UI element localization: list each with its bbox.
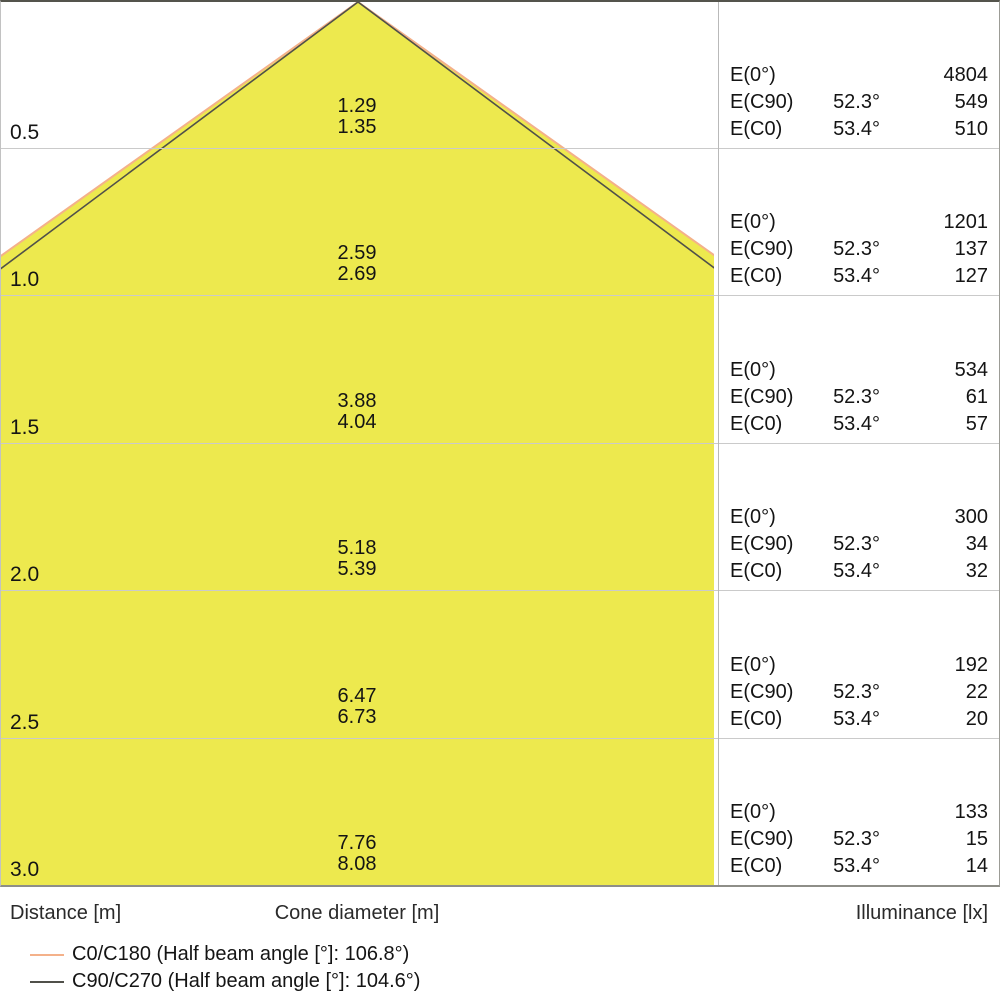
ec90-value: 22 (966, 681, 988, 704)
legend-label-c90-c270: C90/C270 (Half beam angle [°]: 104.6°) (72, 970, 420, 993)
ec90-label: E(C90) (730, 91, 793, 114)
ec0-label: E(C0) (730, 560, 782, 583)
ec90-line: E(C90) 52.3° 61 (730, 386, 988, 413)
e0-line: E(0°) 300 (730, 506, 988, 533)
e0-label: E(0°) (730, 801, 776, 824)
e0-label: E(0°) (730, 359, 776, 382)
cone-diameter-c90: 3.88 (0, 391, 714, 412)
ec90-value: 137 (955, 238, 988, 261)
ec0-line: E(C0) 53.4° 127 (730, 265, 988, 292)
ec0-value: 510 (955, 118, 988, 141)
cone-row: 0.5 1.29 1.35 E(0°) 4804 E(C90) 52.3° 54… (0, 1, 1000, 148)
e0-line: E(0°) 4804 (730, 64, 988, 91)
ec90-angle: 52.3° (833, 91, 880, 114)
cone-diameter-values: 7.76 8.08 (0, 833, 714, 875)
cone-diameter-values: 5.18 5.39 (0, 538, 714, 580)
ec0-angle: 53.4° (833, 560, 880, 583)
ec0-angle: 53.4° (833, 118, 880, 141)
ec90-label: E(C90) (730, 533, 793, 556)
e0-value: 1201 (944, 211, 989, 234)
cone-row: 2.0 5.18 5.39 E(0°) 300 E(C90) 52.3° 34 … (0, 443, 1000, 590)
cone-diameter-values: 1.29 1.35 (0, 96, 714, 138)
illuminance-table: E(0°) 4804 E(C90) 52.3° 549 E(C0) 53.4° … (730, 64, 988, 145)
ec0-line: E(C0) 53.4° 57 (730, 413, 988, 440)
e0-label: E(0°) (730, 211, 776, 234)
ec0-line: E(C0) 53.4° 14 (730, 855, 988, 882)
ec90-angle: 52.3° (833, 386, 880, 409)
cone-diameter-c0: 5.39 (0, 559, 714, 580)
illuminance-table: E(0°) 133 E(C90) 52.3° 15 E(C0) 53.4° 14 (730, 801, 988, 882)
x-axis-label-cone-diameter: Cone diameter [m] (0, 902, 714, 925)
ec90-line: E(C90) 52.3° 137 (730, 238, 988, 265)
cone-diameter-c0: 1.35 (0, 117, 714, 138)
e0-value: 534 (955, 359, 988, 382)
ec90-line: E(C90) 52.3° 549 (730, 91, 988, 118)
cone-diameter-c0: 8.08 (0, 854, 714, 875)
ec0-label: E(C0) (730, 708, 782, 731)
cone-row: 3.0 7.76 8.08 E(0°) 133 E(C90) 52.3° 15 … (0, 738, 1000, 885)
e0-line: E(0°) 1201 (730, 211, 988, 238)
ec90-value: 549 (955, 91, 988, 114)
cone-row: 1.0 2.59 2.69 E(0°) 1201 E(C90) 52.3° 13… (0, 148, 1000, 295)
cone-diameter-c90: 6.47 (0, 686, 714, 707)
cone-diameter-c90: 7.76 (0, 833, 714, 854)
cone-diameter-c90: 5.18 (0, 538, 714, 559)
e0-value: 133 (955, 801, 988, 824)
ec90-angle: 52.3° (833, 238, 880, 261)
ec90-line: E(C90) 52.3° 15 (730, 828, 988, 855)
legend-swatch-c90-line (30, 981, 64, 983)
cone-diameter-c0: 6.73 (0, 707, 714, 728)
cone-diameter-values: 2.59 2.69 (0, 243, 714, 285)
e0-line: E(0°) 133 (730, 801, 988, 828)
ec90-value: 34 (966, 533, 988, 556)
cone-diameter-c90: 2.59 (0, 243, 714, 264)
e0-value: 300 (955, 506, 988, 529)
cone-diameter-c0: 2.69 (0, 264, 714, 285)
cone-diameter-values: 3.88 4.04 (0, 391, 714, 433)
e0-value: 192 (955, 654, 988, 677)
ec0-angle: 53.4° (833, 265, 880, 288)
ec90-label: E(C90) (730, 828, 793, 851)
illuminance-table: E(0°) 300 E(C90) 52.3° 34 E(C0) 53.4° 32 (730, 506, 988, 587)
ec0-label: E(C0) (730, 118, 782, 141)
illuminance-table: E(0°) 192 E(C90) 52.3° 22 E(C0) 53.4° 20 (730, 654, 988, 735)
e0-value: 4804 (944, 64, 989, 87)
ec0-value: 57 (966, 413, 988, 436)
cone-diameter-c0: 4.04 (0, 412, 714, 433)
ec0-label: E(C0) (730, 413, 782, 436)
ec0-angle: 53.4° (833, 708, 880, 731)
e0-label: E(0°) (730, 654, 776, 677)
ec0-label: E(C0) (730, 855, 782, 878)
e0-line: E(0°) 534 (730, 359, 988, 386)
ec0-line: E(C0) 53.4° 32 (730, 560, 988, 587)
illuminance-table: E(0°) 1201 E(C90) 52.3° 137 E(C0) 53.4° … (730, 211, 988, 292)
ec90-line: E(C90) 52.3° 22 (730, 681, 988, 708)
ec90-angle: 52.3° (833, 681, 880, 704)
ec0-value: 20 (966, 708, 988, 731)
ec0-value: 127 (955, 265, 988, 288)
e0-label: E(0°) (730, 64, 776, 87)
legend-label-c0-c180: C0/C180 (Half beam angle [°]: 106.8°) (72, 943, 409, 966)
e0-label: E(0°) (730, 506, 776, 529)
ec90-angle: 52.3° (833, 828, 880, 851)
ec0-line: E(C0) 53.4° 20 (730, 708, 988, 735)
ec0-label: E(C0) (730, 265, 782, 288)
x-axis-label-illuminance: Illuminance [lx] (718, 902, 988, 925)
ec0-angle: 53.4° (833, 855, 880, 878)
ec90-value: 61 (966, 386, 988, 409)
ec0-value: 32 (966, 560, 988, 583)
ec0-value: 14 (966, 855, 988, 878)
cone-row: 2.5 6.47 6.73 E(0°) 192 E(C90) 52.3° 22 … (0, 591, 1000, 738)
ec90-line: E(C90) 52.3° 34 (730, 533, 988, 560)
ec90-angle: 52.3° (833, 533, 880, 556)
cone-diameter-c90: 1.29 (0, 96, 714, 117)
ec90-value: 15 (966, 828, 988, 851)
legend-item-c0-c180: C0/C180 (Half beam angle [°]: 106.8°) (0, 943, 1000, 967)
ec0-line: E(C0) 53.4° 510 (730, 118, 988, 145)
ec0-angle: 53.4° (833, 413, 880, 436)
legend-item-c90-c270: C90/C270 (Half beam angle [°]: 104.6°) (0, 970, 1000, 994)
e0-line: E(0°) 192 (730, 654, 988, 681)
cone-diagram: 0.5 1.29 1.35 E(0°) 4804 E(C90) 52.3° 54… (0, 0, 1000, 1000)
ec90-label: E(C90) (730, 681, 793, 704)
illuminance-table: E(0°) 534 E(C90) 52.3° 61 E(C0) 53.4° 57 (730, 359, 988, 440)
cone-row: 1.5 3.88 4.04 E(0°) 534 E(C90) 52.3° 61 … (0, 296, 1000, 443)
ec90-label: E(C90) (730, 386, 793, 409)
ec90-label: E(C90) (730, 238, 793, 261)
legend-swatch-c0-line (30, 954, 64, 956)
cone-diameter-values: 6.47 6.73 (0, 686, 714, 728)
